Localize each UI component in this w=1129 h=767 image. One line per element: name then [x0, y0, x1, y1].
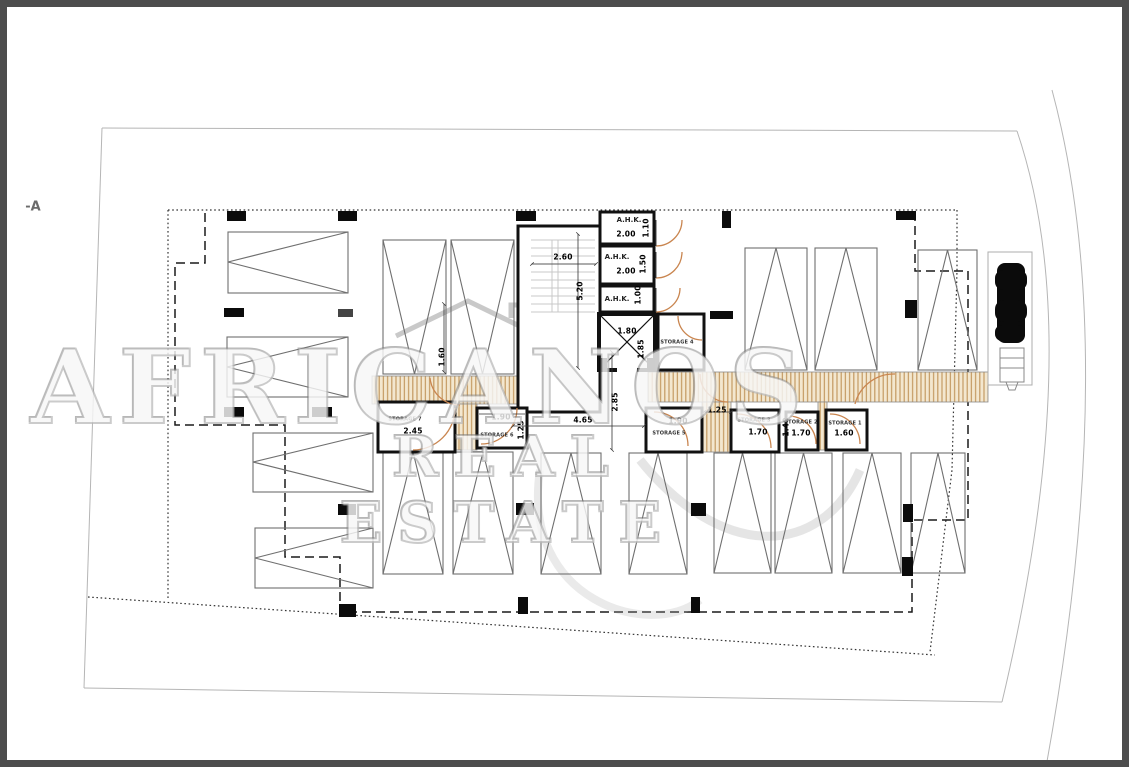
floor-plan-page: -A A.H.K. 2.00 1.10 A.H.K. 2.00 1.50 A.H… [0, 0, 1129, 767]
section-marker: -A [25, 200, 40, 215]
room-label-ahk-3: A.H.K. [605, 295, 630, 303]
dim-ahk2-depth: 1.50 [639, 254, 648, 273]
dim-stair-height: 5.20 [576, 281, 585, 300]
dim-storage5-width: 1.90 [668, 417, 687, 426]
dim-ahk3-depth: 1.00 [634, 285, 643, 304]
dim-storage6-width: 1.90 [491, 413, 510, 422]
room-label-storage-5: STORAGE 5 [652, 430, 685, 436]
dim-ahk2-width: 2.00 [616, 267, 635, 276]
dim-passage-width: 1.25 [707, 406, 726, 415]
room-label-ahk-1: A.H.K. [617, 216, 642, 224]
dim-lift-depth: 1.85 [637, 339, 646, 358]
room-label-storage-2: STORAGE 2 [784, 419, 817, 425]
dim-ahk1-depth: 1.10 [642, 218, 651, 237]
dim-stair-width: 2.60 [553, 253, 572, 262]
room-label-storage-6: STORAGE 6 [480, 432, 513, 438]
dim-ramp-width: 1.60 [438, 347, 447, 366]
dim-storage3-width: 1.70 [748, 428, 767, 437]
floor-plan-drawing [0, 0, 1129, 767]
dim-corridor-depth: 2.85 [611, 392, 620, 411]
dim-corridor-width: 4.65 [573, 416, 592, 425]
dim-storage2-width: 1.70 [791, 429, 810, 438]
plot-boundary [84, 90, 1086, 767]
room-label-ahk-2: A.H.K. [605, 253, 630, 261]
planter [988, 252, 1032, 390]
dim-storage1-width: 1.60 [834, 429, 853, 438]
dim-storage7-width: 2.45 [403, 427, 422, 436]
room-label-storage-1: STORAGE 1 [828, 420, 861, 426]
dim-ahk1-width: 2.00 [616, 230, 635, 239]
room-label-storage-3: STORAGE 3 [737, 417, 770, 423]
room-label-storage-7: STORAGE 7 [388, 416, 421, 422]
dim-lift-width: 1.80 [617, 327, 636, 336]
room-label-storage-4: STORAGE 4 [660, 339, 693, 345]
dim-storage6-depth: 1.25 [517, 420, 526, 439]
